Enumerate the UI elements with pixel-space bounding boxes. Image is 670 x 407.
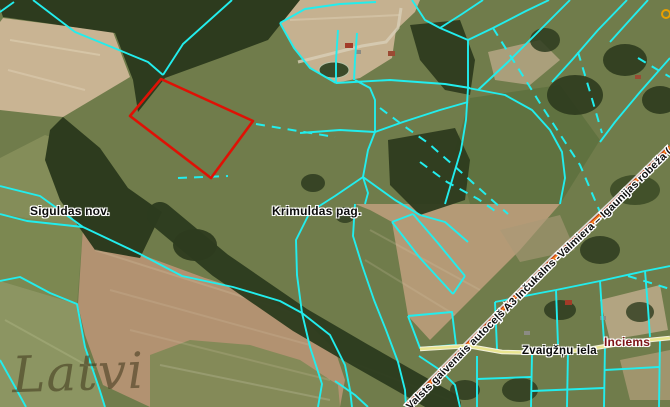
satellite-cadastre-map[interactable]: Valsts galvenais autoceļš A3 Inčukalns -… [0, 0, 670, 407]
building [524, 331, 530, 335]
cadastre-boundary-line [567, 350, 568, 407]
tree-cluster [626, 302, 654, 322]
tree-cluster [530, 28, 560, 52]
tree-cluster [502, 378, 538, 402]
map-watermark: Latvi [11, 342, 145, 405]
building [565, 300, 572, 305]
label-parish: Krimuldas pag. [272, 204, 361, 218]
building [635, 75, 641, 79]
tree-cluster [301, 174, 325, 192]
building [388, 51, 395, 56]
label-street-name: Zvaigžņu iela [522, 345, 597, 357]
cadastre-boundary-line [531, 354, 532, 407]
cadastre-boundary-line [604, 344, 605, 407]
label-village-inciems: Inciems [604, 335, 650, 349]
tree-cluster [580, 236, 620, 264]
tree-cluster [547, 75, 603, 115]
building [345, 43, 353, 48]
label-municipality: Siguldas nov. [30, 204, 110, 218]
cadastre-boundary-line [659, 338, 660, 407]
